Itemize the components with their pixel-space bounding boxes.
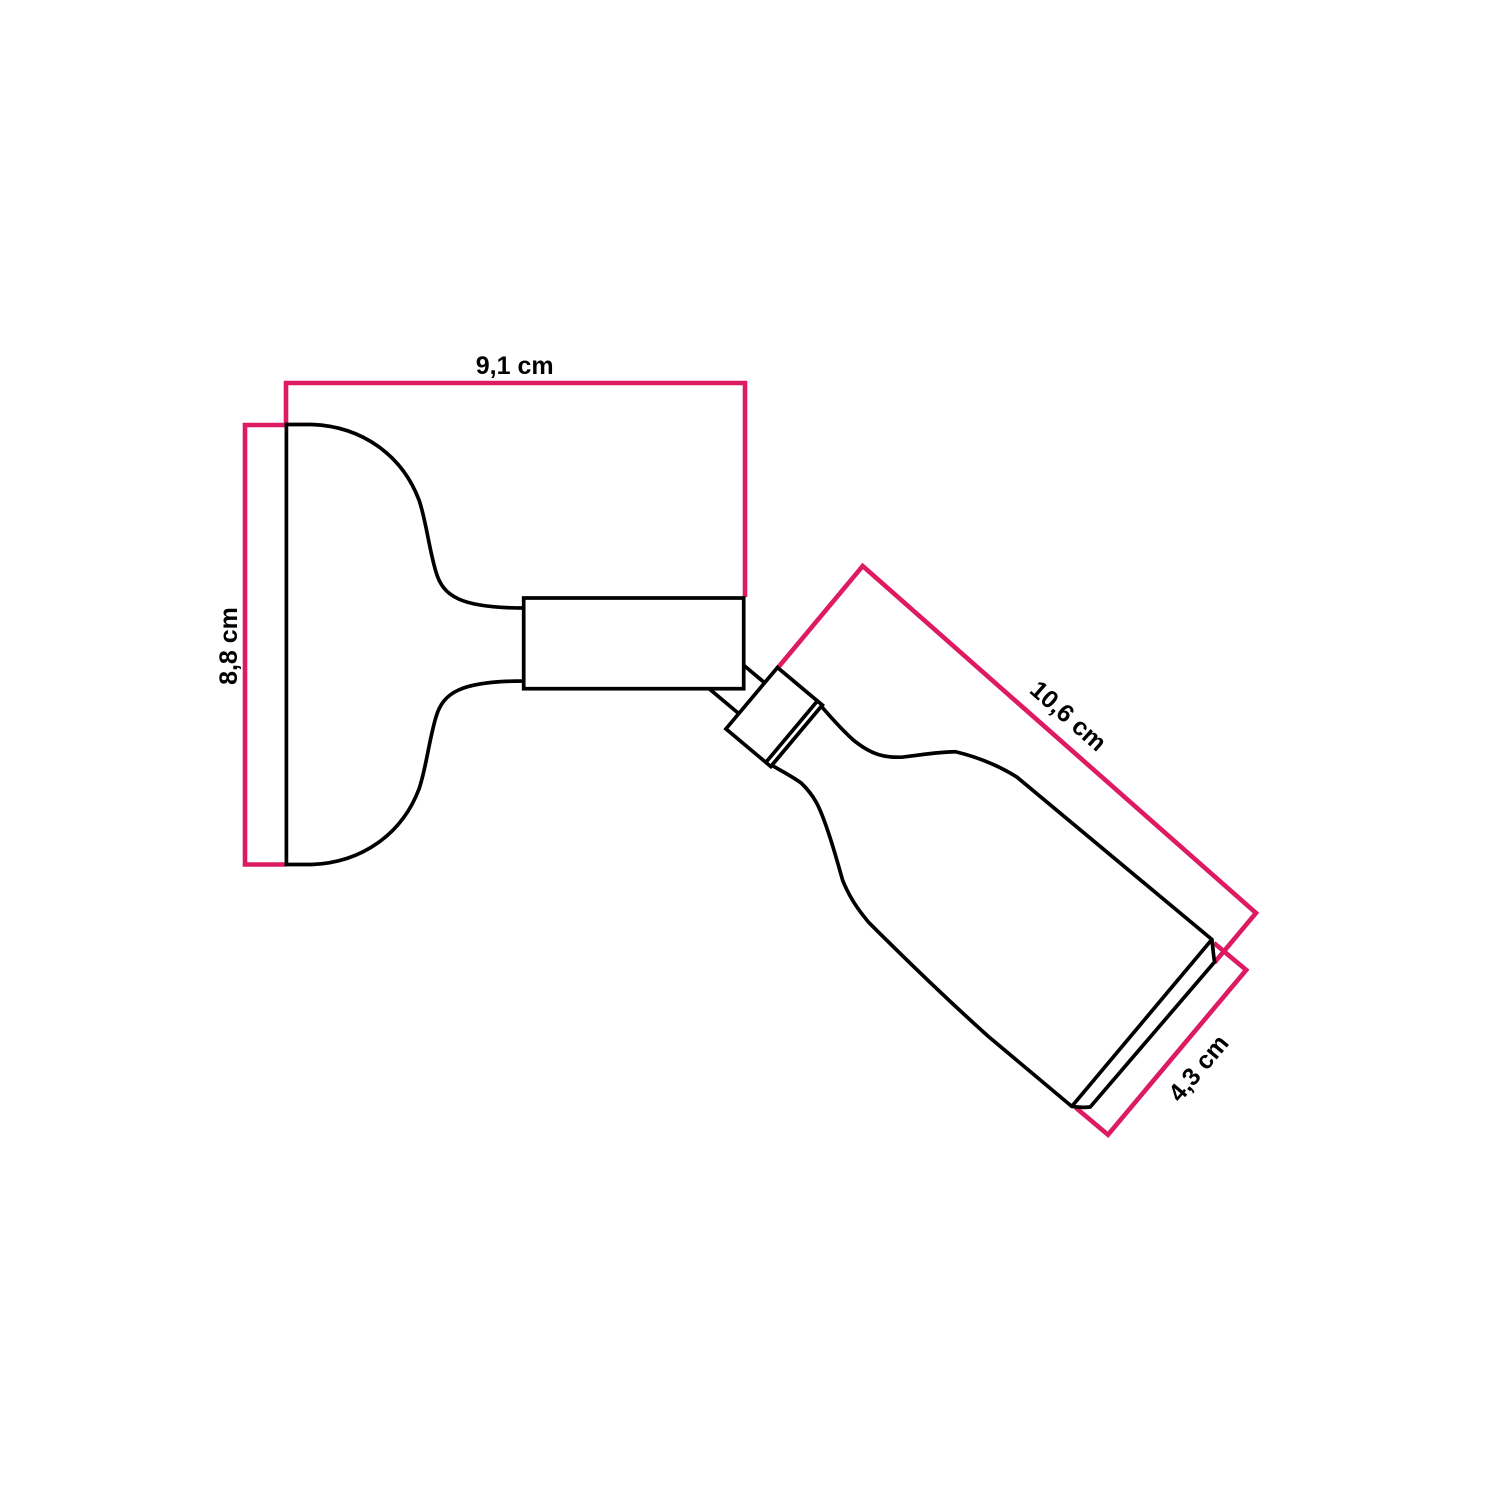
svg-text:9,1 cm: 9,1 cm <box>476 352 554 380</box>
svg-text:8,8 cm: 8,8 cm <box>215 607 243 685</box>
